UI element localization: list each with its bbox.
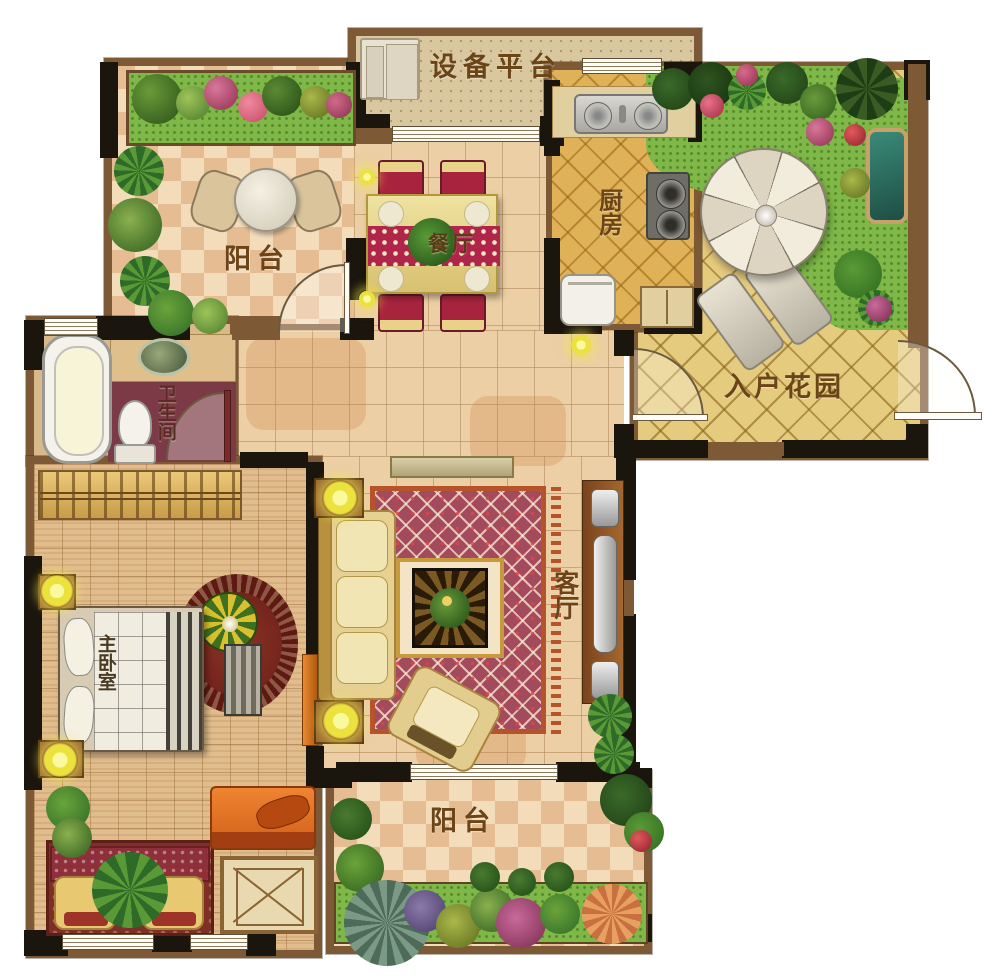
pillow: [62, 685, 96, 745]
ceiling-light: [570, 334, 592, 356]
window: [582, 58, 662, 74]
plant: [330, 798, 372, 840]
plant: [470, 862, 500, 892]
tv-console: [582, 480, 624, 704]
plant: [92, 852, 168, 928]
door-arc-entry: [898, 340, 976, 416]
dining-chair: [440, 160, 486, 198]
dining-chair: [378, 294, 424, 332]
dining-chair: [378, 160, 424, 198]
kitchen-cabinet: [640, 286, 694, 328]
door-leaf-entry: [894, 412, 982, 420]
window: [392, 126, 540, 142]
wall-segment-brown: [708, 442, 784, 456]
wall-segment: [782, 440, 908, 458]
plant: [840, 168, 870, 198]
stove-burner: [656, 210, 686, 240]
room-label-balcony-top: 阳台: [224, 244, 290, 275]
wardrobe-rail: [40, 498, 240, 500]
flower: [326, 92, 352, 118]
bathtub-inner: [54, 346, 104, 456]
stove: [646, 172, 690, 240]
water-heater: [360, 38, 420, 100]
bed-blanket: [166, 612, 202, 750]
plant: [52, 818, 92, 858]
round-table: [234, 168, 298, 232]
wall-segment-brown: [232, 316, 280, 340]
door-leaf-balcony-top: [344, 262, 350, 334]
flower: [866, 296, 892, 322]
umbrella-center: [752, 202, 779, 229]
tv-screen: [593, 535, 617, 653]
wall-segment: [614, 424, 634, 458]
speaker: [591, 661, 619, 699]
wall-segment-brown: [354, 128, 392, 144]
flower-center: [222, 616, 238, 632]
refrigerator: [560, 274, 616, 326]
plate: [464, 266, 490, 292]
plant: [132, 74, 182, 124]
pillow: [62, 617, 96, 677]
flower: [204, 76, 238, 110]
plant: [540, 894, 580, 934]
fridge-handle: [568, 282, 612, 285]
floor-plan: 阳台 设备平台 厨房 入户花园: [0, 0, 1000, 980]
room-label-equipment-platform: 设备平台: [430, 52, 562, 83]
sink-bowl: [584, 102, 612, 130]
plant: [508, 868, 536, 896]
flower: [630, 830, 652, 852]
room-label-bathroom: 卫生间: [154, 384, 176, 441]
wall-segment: [906, 424, 928, 458]
floor-lamp: [322, 702, 360, 740]
room-label-kitchen: 厨房: [594, 188, 622, 236]
flower: [700, 94, 724, 118]
daybed-pillow: [253, 790, 313, 833]
speaker: [591, 489, 619, 527]
bay-window-box: [220, 856, 318, 934]
ceiling-light: [358, 290, 376, 308]
console-bench: [390, 456, 514, 478]
table-lamp: [40, 574, 74, 608]
door-leaf-garden: [632, 414, 708, 421]
wall-segment: [634, 440, 708, 458]
sink-tap: [619, 105, 626, 123]
garden-pond: [866, 128, 908, 224]
plant: [192, 298, 228, 334]
room-label-living: 客厅: [550, 570, 579, 620]
ceiling-light: [358, 168, 376, 186]
daybed-mattress: [212, 832, 314, 848]
plate: [378, 266, 404, 292]
wall-segment: [614, 330, 634, 356]
sink-bowl: [634, 102, 662, 130]
plant: [582, 884, 642, 944]
bathtub: [42, 334, 112, 464]
tile-patch: [246, 338, 366, 430]
wall-segment: [100, 62, 118, 158]
plant: [594, 734, 634, 774]
plant: [544, 862, 574, 892]
plant: [588, 694, 632, 738]
appliance-door: [386, 44, 418, 100]
daybed: [210, 786, 316, 850]
window: [190, 934, 248, 950]
table-lamp: [42, 742, 78, 778]
toilet-tank: [114, 444, 156, 464]
sofa-cushion: [336, 632, 388, 684]
flower: [806, 118, 834, 146]
appliance-panel: [366, 46, 384, 98]
tree: [836, 58, 898, 120]
sofa: [318, 506, 396, 700]
flower: [736, 64, 758, 86]
plant: [114, 146, 164, 196]
room-label-master-bedroom: 主卧室: [94, 634, 116, 691]
bed: [58, 606, 204, 752]
plant: [108, 198, 162, 252]
wall-segment-brown: [908, 64, 926, 348]
sofa-cushion: [336, 576, 388, 628]
cabinet-divider: [666, 290, 668, 324]
plant: [262, 76, 302, 116]
kitchen-sink: [574, 94, 668, 134]
dining-chair: [440, 294, 486, 332]
toilet: [112, 400, 154, 462]
stove-burner: [656, 179, 686, 209]
room-label-entry-garden: 入户花园: [724, 372, 844, 403]
wardrobe-rail: [40, 492, 240, 494]
flower: [496, 898, 546, 948]
sofa-cushion: [336, 520, 388, 572]
rug-runner: [224, 644, 262, 716]
window: [62, 934, 154, 950]
wardrobe: [38, 470, 242, 520]
toilet-bowl: [118, 400, 152, 448]
wall-segment: [240, 452, 308, 468]
room-label-dining: 餐厅: [428, 232, 476, 256]
plant: [148, 290, 194, 336]
room-label-balcony-bottom: 阳台: [430, 806, 496, 837]
window: [44, 318, 98, 336]
flower: [844, 124, 866, 146]
sliding-door: [410, 764, 558, 780]
floor-lamp: [322, 480, 358, 516]
wall-segment: [24, 320, 44, 370]
bathroom-sink: [138, 338, 190, 376]
plate: [378, 201, 404, 227]
flower: [442, 596, 452, 606]
plate: [464, 201, 490, 227]
plant: [800, 84, 836, 120]
door-leaf-bathroom: [224, 390, 231, 462]
coffee-table-plant: [430, 588, 470, 628]
rug-flower-motif: [198, 592, 258, 652]
wall-segment: [336, 762, 412, 782]
